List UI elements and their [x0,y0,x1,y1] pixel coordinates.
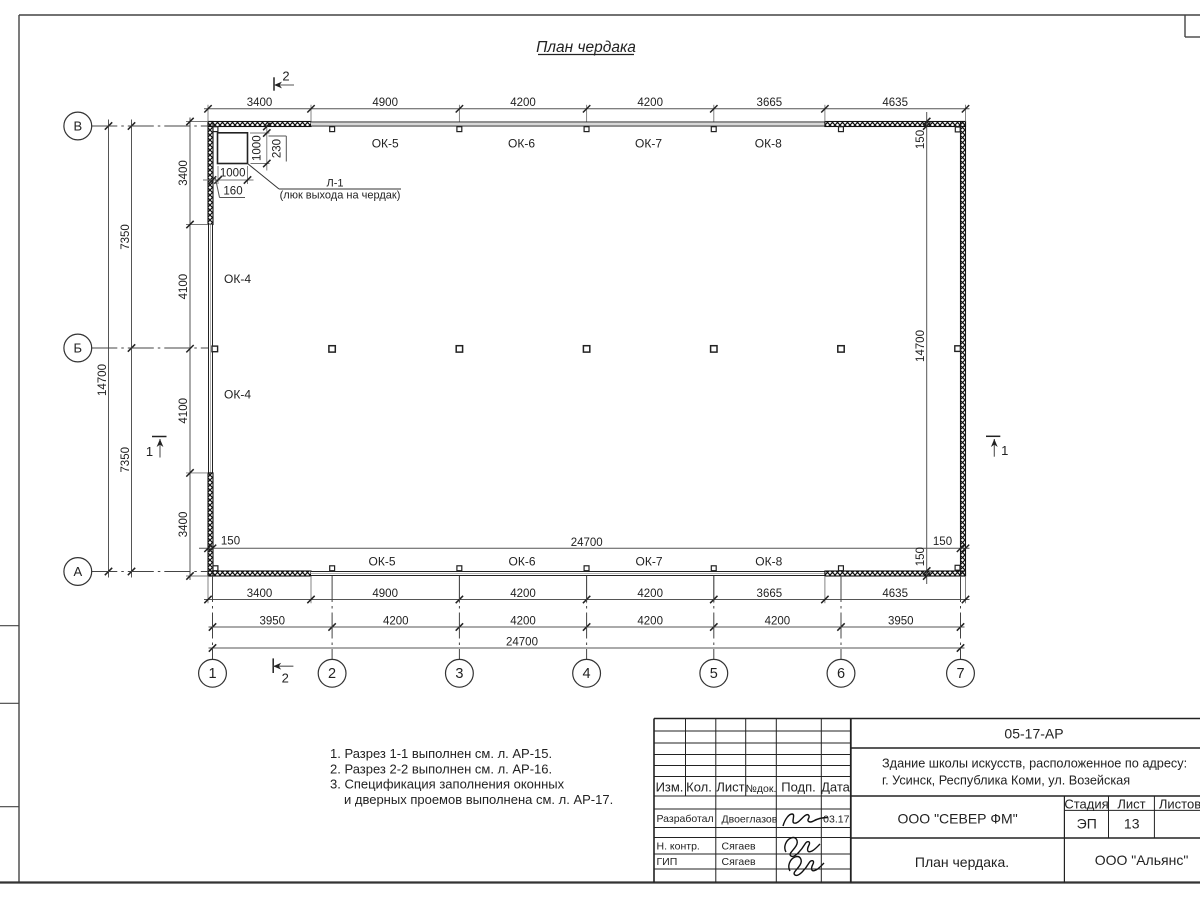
svg-text:1: 1 [208,666,216,682]
svg-text:План чердака: План чердака [536,39,636,56]
svg-text:4900: 4900 [372,588,398,600]
svg-text:1. Разрез 1-1 выполнен см. л.: 1. Разрез 1-1 выполнен см. л. АР-15. [330,746,552,761]
svg-text:и дверных проемов выполнена см: и дверных проемов выполнена см. л. АР-17… [344,792,613,807]
svg-text:4200: 4200 [383,615,409,627]
svg-text:05-17-АР: 05-17-АР [1004,725,1063,741]
svg-text:Листов: Листов [1159,797,1200,812]
svg-text:13: 13 [1124,816,1140,832]
svg-text:150: 150 [915,547,927,566]
svg-text:4900: 4900 [372,97,398,109]
svg-text:3400: 3400 [247,97,273,109]
svg-text:Лист: Лист [716,780,744,795]
svg-text:ОК-5: ОК-5 [372,137,399,151]
svg-text:7: 7 [956,666,964,682]
svg-text:ОК-7: ОК-7 [636,554,663,568]
svg-text:ОК-4: ОК-4 [224,388,251,402]
svg-text:4200: 4200 [637,615,663,627]
svg-text:24700: 24700 [506,636,538,648]
svg-text:2: 2 [282,670,289,685]
svg-text:Изм.: Изм. [656,780,684,795]
svg-text:3400: 3400 [247,588,273,600]
svg-text:Разработал: Разработал [657,813,714,825]
svg-text:7350: 7350 [120,447,132,473]
svg-text:4100: 4100 [178,274,190,300]
svg-text:4635: 4635 [882,588,908,600]
svg-text:150: 150 [221,536,240,548]
svg-text:ООО "Альянс": ООО "Альянс" [1095,852,1189,868]
svg-text:Подп.: Подп. [781,780,816,795]
svg-text:Лист: Лист [1117,797,1145,812]
svg-text:4200: 4200 [637,97,663,109]
svg-text:3: 3 [455,666,463,682]
svg-text:3950: 3950 [260,615,286,627]
svg-text:Двоеглазов: Двоеглазов [722,814,778,826]
svg-text:Н. контр.: Н. контр. [657,841,700,853]
svg-text:160: 160 [223,186,242,198]
svg-text:3665: 3665 [757,97,783,109]
svg-text:14700: 14700 [97,364,109,396]
svg-text:1000: 1000 [220,168,246,180]
svg-text:150: 150 [915,130,927,149]
svg-text:ОК-4: ОК-4 [224,272,251,286]
svg-text:Дата: Дата [821,780,851,795]
svg-text:А: А [73,564,82,579]
svg-text:ГИП: ГИП [657,856,678,868]
svg-text:г. Усинск, Республика Коми, ул: г. Усинск, Республика Коми, ул. Возейска… [882,773,1130,787]
svg-text:03.17: 03.17 [823,814,849,826]
svg-text:(люк выхода на чердак): (люк выхода на чердак) [280,190,401,202]
svg-text:150: 150 [933,536,952,548]
svg-text:4100: 4100 [178,398,190,424]
svg-text:ОК-6: ОК-6 [509,554,536,568]
svg-text:План чердака.: План чердака. [915,854,1009,870]
svg-text:4200: 4200 [765,615,791,627]
svg-text:2: 2 [282,69,289,84]
svg-text:1000: 1000 [252,135,264,161]
svg-text:4: 4 [583,666,591,682]
svg-text:3400: 3400 [178,160,190,186]
svg-text:ОК-6: ОК-6 [508,137,535,151]
svg-text:Сягаев: Сягаев [722,856,757,868]
svg-text:2. Разрез 2-2 выполнен см. л.: 2. Разрез 2-2 выполнен см. л. АР-16. [330,761,552,776]
svg-text:5: 5 [710,666,718,682]
svg-text:В: В [73,119,82,134]
svg-text:ОК-8: ОК-8 [755,554,782,568]
svg-text:24700: 24700 [571,537,603,549]
svg-text:3665: 3665 [757,588,783,600]
svg-text:Л-1: Л-1 [327,178,344,190]
svg-text:Кол.: Кол. [686,780,712,795]
svg-text:4635: 4635 [882,97,908,109]
svg-text:4200: 4200 [510,615,536,627]
svg-text:3. Спецификация заполнения око: 3. Спецификация заполнения оконных [330,777,565,792]
svg-text:Здание школы искусств, располо: Здание школы искусств, расположенное по … [882,757,1187,771]
svg-text:Б: Б [74,341,83,356]
svg-text:7350: 7350 [120,224,132,250]
svg-text:2: 2 [328,666,336,682]
svg-text:3950: 3950 [888,615,914,627]
svg-text:Сягаев: Сягаев [722,841,757,853]
svg-text:ООО "СЕВЕР ФМ": ООО "СЕВЕР ФМ" [898,811,1018,827]
svg-text:3400: 3400 [178,512,190,538]
svg-text:4200: 4200 [637,588,663,600]
svg-text:4200: 4200 [510,588,536,600]
svg-text:Стадия: Стадия [1064,797,1108,812]
svg-text:ОК-8: ОК-8 [755,137,782,151]
svg-text:№док.: №док. [746,783,777,795]
svg-text:14700: 14700 [915,330,927,362]
svg-text:ОК-5: ОК-5 [369,554,396,568]
svg-text:6: 6 [837,666,845,682]
svg-text:1: 1 [1001,443,1008,458]
svg-text:1: 1 [146,444,153,459]
svg-text:ЭП: ЭП [1077,816,1097,832]
svg-text:4200: 4200 [510,97,536,109]
svg-text:230: 230 [272,139,284,158]
svg-text:ОК-7: ОК-7 [635,137,662,151]
